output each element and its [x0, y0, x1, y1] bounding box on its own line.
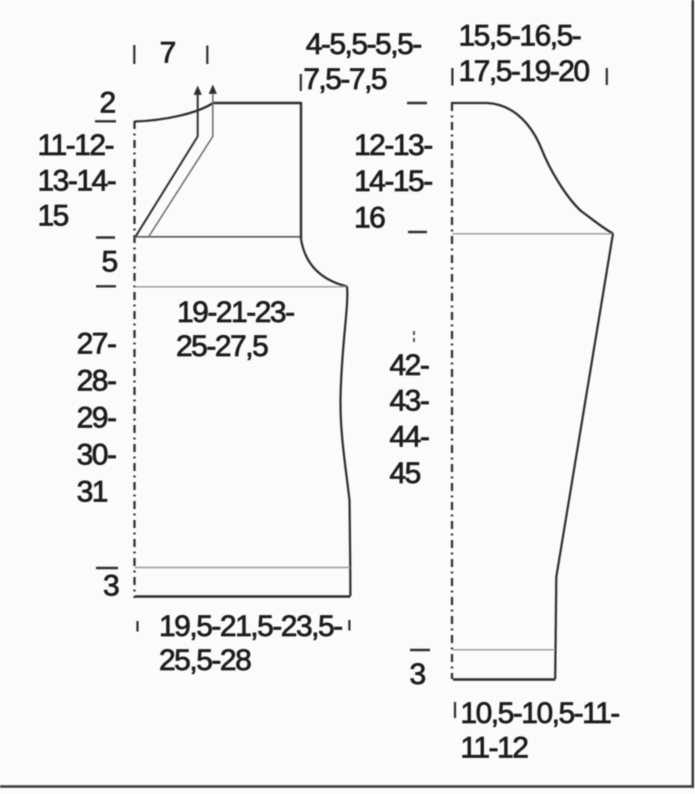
svg-text:4-5,5-5,5-: 4-5,5-5,5-	[306, 28, 422, 61]
svg-text:16: 16	[354, 202, 385, 235]
svg-text:25-27,5: 25-27,5	[176, 330, 268, 363]
svg-text:5: 5	[102, 245, 118, 278]
svg-text:25,5-28: 25,5-28	[159, 644, 251, 677]
svg-text:14-15-: 14-15-	[354, 165, 432, 198]
svg-text:15: 15	[38, 200, 69, 233]
svg-text:17,5-19-20: 17,5-19-20	[459, 55, 590, 88]
svg-text:13-14-: 13-14-	[38, 165, 116, 198]
svg-text:42-: 42-	[390, 349, 429, 382]
svg-text:30-: 30-	[77, 439, 116, 472]
svg-text:29-: 29-	[77, 402, 116, 435]
svg-text:3: 3	[103, 570, 119, 603]
svg-text:19-21-23-: 19-21-23-	[177, 296, 294, 329]
svg-text:12-13-: 12-13-	[354, 129, 432, 162]
svg-text:27-: 27-	[77, 328, 116, 361]
svg-text:11-12: 11-12	[460, 731, 528, 764]
svg-text:31: 31	[77, 476, 108, 509]
svg-text:45: 45	[390, 457, 421, 490]
svg-text:28-: 28-	[77, 365, 116, 398]
svg-text:43-: 43-	[390, 385, 429, 418]
svg-text:7,5-7,5: 7,5-7,5	[303, 63, 387, 96]
svg-text:11-12-: 11-12-	[38, 129, 114, 162]
svg-text:2: 2	[100, 87, 116, 120]
svg-text:10,5-10,5-11-: 10,5-10,5-11-	[460, 697, 619, 730]
svg-text:15,5-16,5-: 15,5-16,5-	[459, 20, 581, 53]
svg-text:44-: 44-	[390, 421, 429, 454]
svg-text:19,5-21,5-23,5-: 19,5-21,5-23,5-	[159, 610, 342, 643]
svg-text:3: 3	[410, 658, 426, 691]
svg-text:7: 7	[160, 37, 176, 70]
